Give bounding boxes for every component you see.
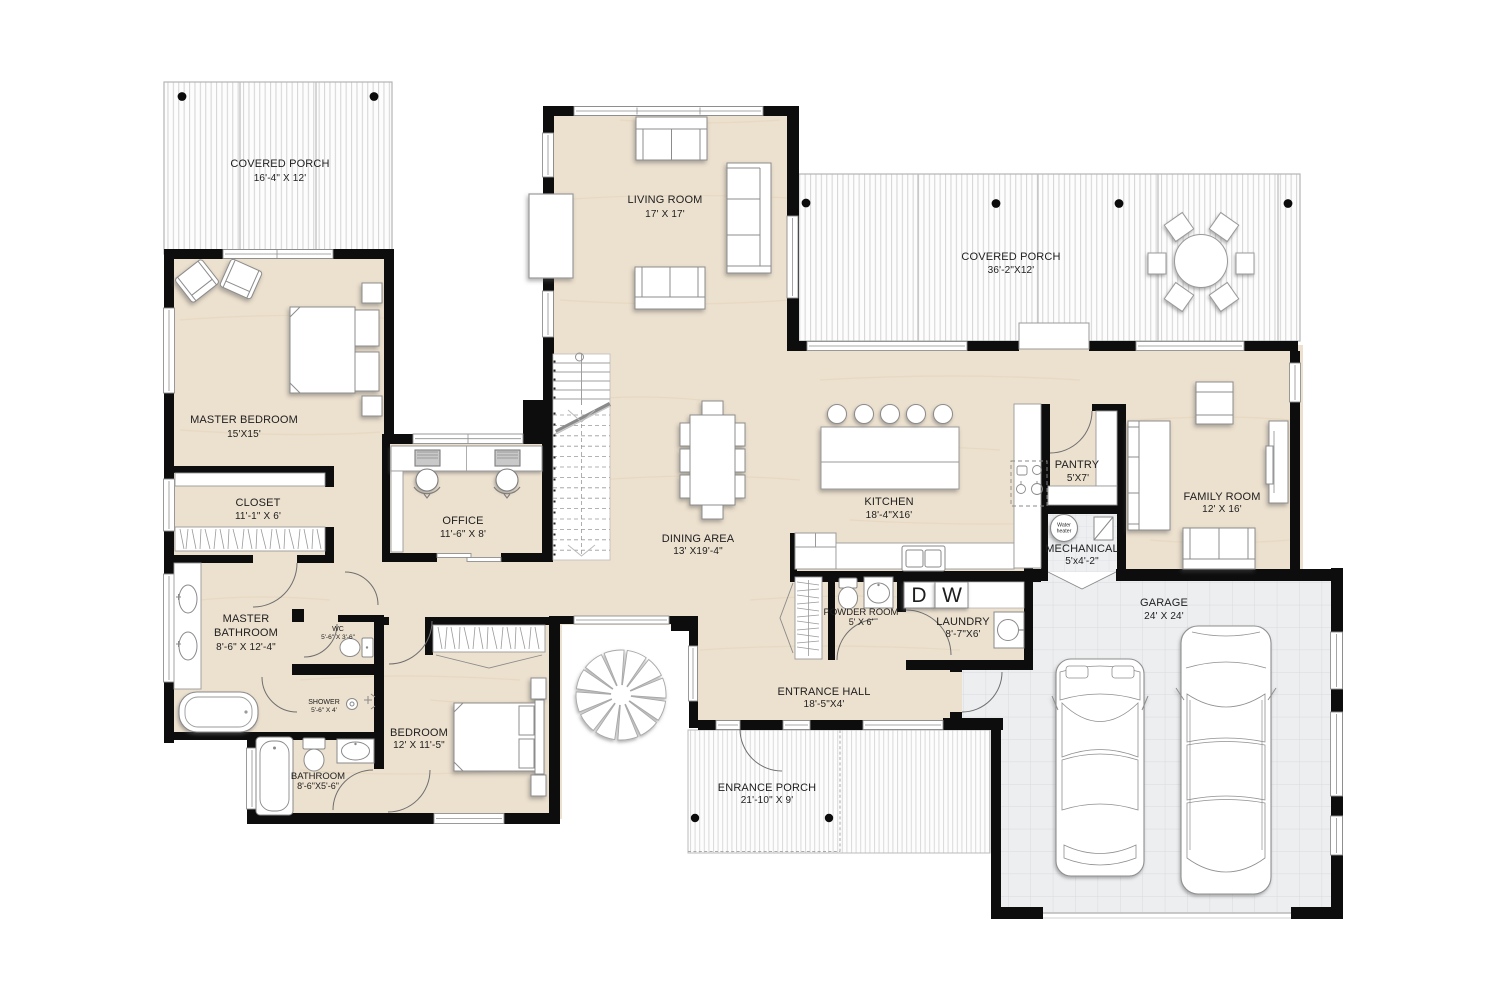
svg-text:GARAGE: GARAGE bbox=[1140, 597, 1188, 609]
svg-text:36'-2"X12': 36'-2"X12' bbox=[988, 265, 1035, 276]
svg-text:5'-6" X 3'-6": 5'-6" X 3'-6" bbox=[321, 634, 356, 641]
svg-text:PANTRY: PANTRY bbox=[1055, 459, 1100, 471]
svg-text:BATHROOM: BATHROOM bbox=[214, 627, 278, 639]
svg-text:5' X 6': 5' X 6' bbox=[849, 617, 874, 627]
svg-text:17' X 17': 17' X 17' bbox=[645, 209, 685, 220]
svg-text:DINING AREA: DINING AREA bbox=[662, 533, 735, 545]
svg-text:5'X7': 5'X7' bbox=[1067, 473, 1089, 484]
svg-text:FAMILY ROOM: FAMILY ROOM bbox=[1183, 491, 1260, 503]
svg-text:21'-10" X 9': 21'-10" X 9' bbox=[741, 795, 794, 806]
svg-text:MECHANICAL: MECHANICAL bbox=[1045, 543, 1119, 555]
svg-text:D: D bbox=[911, 584, 926, 607]
svg-text:5'-6" X 4': 5'-6" X 4' bbox=[311, 707, 337, 714]
svg-text:15'X15': 15'X15' bbox=[227, 429, 261, 440]
svg-text:WC: WC bbox=[332, 626, 344, 633]
svg-text:OFFICE: OFFICE bbox=[442, 515, 483, 527]
svg-text:11'-1" X 6': 11'-1" X 6' bbox=[235, 511, 281, 522]
svg-text:13' X19'-4": 13' X19'-4" bbox=[673, 546, 723, 557]
svg-text:W: W bbox=[942, 584, 962, 607]
svg-text:COVERED PORCH: COVERED PORCH bbox=[961, 251, 1060, 263]
svg-text:MASTER BEDROOM: MASTER BEDROOM bbox=[190, 414, 298, 426]
svg-text:8'-6" X 12'-4": 8'-6" X 12'-4" bbox=[216, 642, 276, 653]
svg-text:ENTRANCE HALL: ENTRANCE HALL bbox=[777, 686, 870, 698]
svg-text:18'-5"X4': 18'-5"X4' bbox=[804, 699, 845, 710]
svg-text:SHOWER: SHOWER bbox=[308, 699, 340, 706]
svg-text:12' X 16': 12' X 16' bbox=[1202, 504, 1242, 515]
svg-text:MASTER: MASTER bbox=[223, 613, 270, 625]
svg-text:BEDROOM: BEDROOM bbox=[390, 727, 448, 739]
svg-text:LAUNDRY: LAUNDRY bbox=[936, 616, 990, 628]
svg-text:ENRANCE PORCH: ENRANCE PORCH bbox=[718, 782, 817, 794]
svg-text:16'-4" X 12': 16'-4" X 12' bbox=[254, 173, 307, 184]
svg-text:LIVING ROOM: LIVING ROOM bbox=[628, 194, 703, 206]
svg-text:5'x4'-2": 5'x4'-2" bbox=[1065, 556, 1099, 567]
svg-text:8'-6"X5'-6": 8'-6"X5'-6" bbox=[297, 781, 339, 791]
svg-text:CLOSET: CLOSET bbox=[236, 497, 281, 509]
svg-text:11'-6" X 8': 11'-6" X 8' bbox=[440, 529, 486, 540]
svg-text:KITCHEN: KITCHEN bbox=[864, 496, 913, 508]
svg-text:24' X 24': 24' X 24' bbox=[1144, 611, 1184, 622]
svg-text:heater: heater bbox=[1057, 529, 1072, 535]
svg-text:18'-4"X16': 18'-4"X16' bbox=[866, 510, 913, 521]
svg-text:8'-7"X6': 8'-7"X6' bbox=[945, 629, 980, 640]
svg-text:12' X 11'-5": 12' X 11'-5" bbox=[393, 740, 445, 751]
svg-text:COVERED PORCH: COVERED PORCH bbox=[230, 158, 329, 170]
